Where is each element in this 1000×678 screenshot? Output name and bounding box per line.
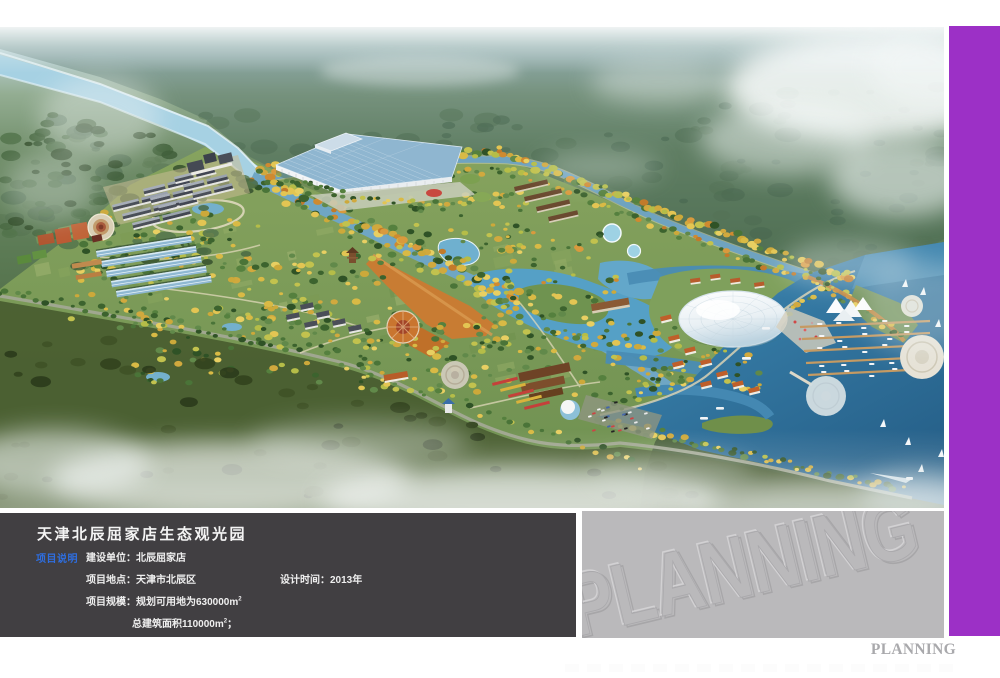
svg-text:PLANNING: PLANNING bbox=[582, 511, 927, 638]
